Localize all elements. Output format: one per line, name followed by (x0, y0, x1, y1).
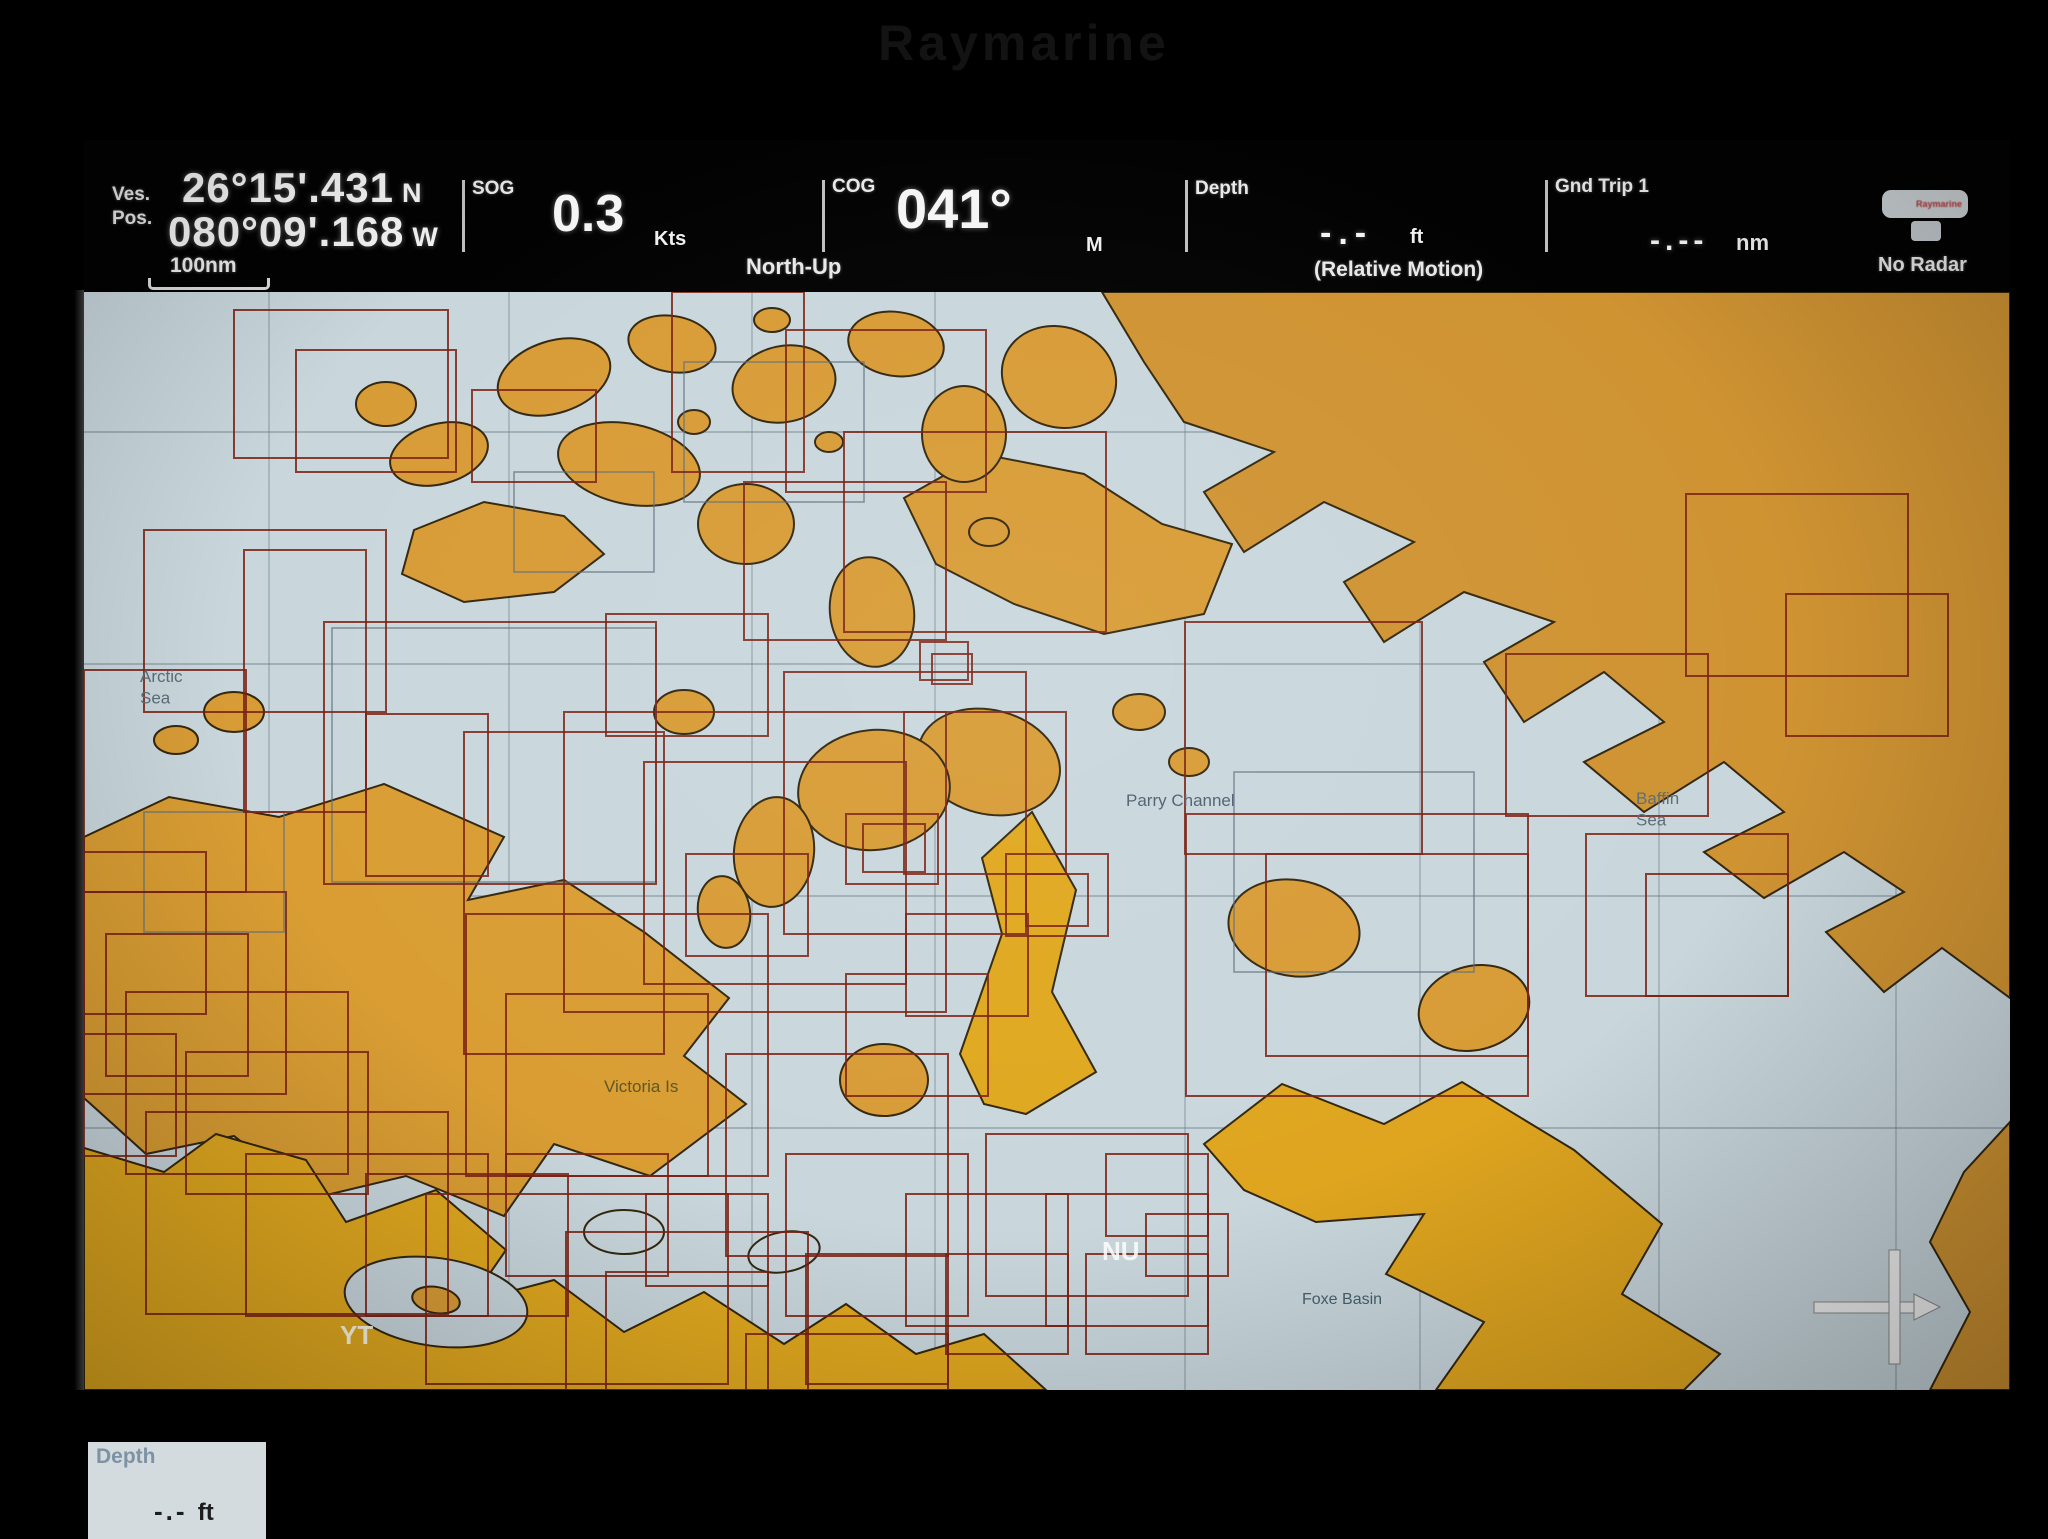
map-label-nu: NU (1102, 1236, 1140, 1266)
radar-scanner-icon: Raymarine (1882, 190, 1970, 241)
bezel-brand-logo: Raymarine (0, 14, 2048, 72)
radar-dome-shape: Raymarine (1882, 190, 1968, 218)
gnd-trip-value: -.-- (1650, 224, 1708, 258)
radar-icon-text: Raymarine (1916, 199, 1962, 209)
sog-unit: Kts (654, 228, 686, 251)
sog-value: 0.3 (552, 184, 624, 244)
depth-databox-number: -.- (154, 1496, 188, 1526)
gnd-trip-label: Gnd Trip 1 (1555, 176, 1649, 198)
island (754, 308, 790, 332)
chart-area[interactable]: ArcticSeaParry ChannelBaffinSeaVictoria … (84, 292, 2010, 1390)
cog-value: 041° (896, 176, 1012, 241)
motion-mode-label: (Relative Motion) (1314, 258, 1483, 282)
depth-databox-unit: ft (198, 1499, 214, 1526)
island (698, 484, 794, 564)
sog-label: SOG (472, 178, 514, 200)
databar-divider (1545, 180, 1548, 252)
radar-base-shape (1911, 221, 1941, 241)
databar-divider (822, 180, 825, 252)
scale-bar-label: 100nm (170, 254, 270, 278)
vessel-latitude: 26°15'.431N (182, 164, 422, 212)
vessel-position-label-2: Pos. (112, 208, 152, 230)
latitude-value: 26°15'.431 (182, 164, 394, 211)
island (1169, 748, 1209, 776)
scale-bar-line (148, 278, 270, 290)
cog-unit: M (1086, 234, 1103, 257)
databar-divider (462, 180, 465, 252)
cog-label: COG (832, 176, 875, 198)
depth-databox[interactable]: Depth -.- ft (88, 1442, 266, 1539)
depth-unit: ft (1410, 226, 1423, 249)
island (154, 726, 198, 754)
map-label-foxe-basin: Foxe Basin (1302, 1291, 1382, 1308)
depth-value: -.- (1320, 214, 1373, 253)
vessel-position-label-1: Ves. (112, 184, 150, 206)
map-label-victoria-is: Victoria Is (604, 1077, 678, 1096)
chartplotter-photo: { "device": { "brand": "Raymarine" }, "d… (0, 0, 2048, 1536)
radar-status-label: No Radar (1878, 254, 1967, 277)
island (815, 432, 843, 452)
island (922, 386, 1006, 482)
longitude-value: 080°09'.168 (168, 208, 404, 255)
island (678, 410, 710, 434)
chart-scale-bar: 100nm (148, 254, 270, 290)
chartplotter-screen: Ves. Pos. 26°15'.431N 080°09'.168W 100nm… (84, 140, 2010, 1390)
databar-divider (1185, 180, 1188, 252)
map-label-parry-channel: Parry Channel (1126, 791, 1235, 810)
longitude-hemisphere: W (412, 222, 438, 252)
vessel-longitude: 080°09'.168W (168, 208, 439, 256)
island (969, 518, 1009, 546)
latitude-hemisphere: N (402, 178, 423, 208)
chart-orientation-label: North-Up (746, 254, 841, 280)
gnd-trip-unit: nm (1736, 230, 1769, 256)
depth-databox-label: Depth (96, 1445, 156, 1469)
map-label-yt: YT (340, 1320, 373, 1350)
databar: Ves. Pos. 26°15'.431N 080°09'.168W 100nm… (84, 140, 2010, 292)
chart-svg: ArcticSeaParry ChannelBaffinSeaVictoria … (84, 292, 2010, 1390)
island (356, 382, 416, 426)
depth-databox-value: -.- ft (154, 1496, 214, 1527)
depth-label: Depth (1195, 178, 1249, 200)
island (1113, 694, 1165, 730)
